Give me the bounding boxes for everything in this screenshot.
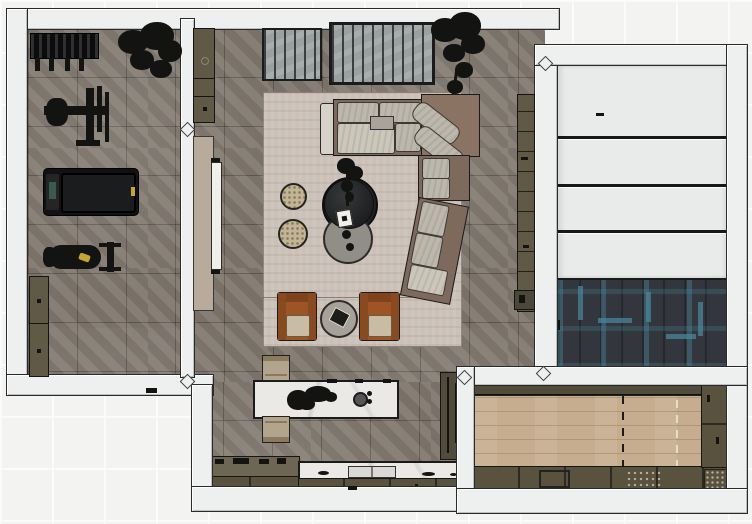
mudroom-base-cabinet-row bbox=[473, 466, 728, 490]
wall-shelf-unit bbox=[517, 94, 535, 312]
sofa-corner-chaise bbox=[421, 94, 480, 157]
plant-foliage bbox=[150, 60, 172, 78]
pouf bbox=[278, 219, 308, 249]
shelf-item bbox=[521, 157, 528, 160]
shelf-item bbox=[523, 245, 529, 248]
cooktop-burner bbox=[259, 459, 269, 464]
treadmill-screen bbox=[49, 182, 56, 199]
chair-backrest bbox=[263, 437, 289, 442]
door-dash-line bbox=[622, 396, 624, 468]
decor-frame bbox=[539, 470, 570, 488]
sofa-end-pad bbox=[406, 264, 448, 297]
herringbone-plank bbox=[598, 318, 632, 323]
panel-joint-line bbox=[676, 396, 678, 468]
cabinet-shelf-line bbox=[194, 96, 214, 97]
rack-leg bbox=[79, 58, 84, 71]
gym-storage-cabinet bbox=[29, 276, 49, 377]
table-decor bbox=[342, 230, 351, 239]
cabinet-shelf-line bbox=[194, 78, 214, 79]
sofa-seat-cushion bbox=[416, 201, 450, 238]
sofa-top-section bbox=[333, 99, 423, 156]
table-decor bbox=[346, 243, 354, 251]
cooktop-burner bbox=[215, 459, 224, 464]
herringbone-plank bbox=[698, 302, 703, 336]
sofa-seat-cushion bbox=[422, 178, 450, 199]
bench-pad bbox=[49, 245, 101, 269]
armchair-seat-cushion bbox=[286, 315, 310, 337]
island-edge-tab bbox=[383, 379, 391, 383]
garage-door-panels bbox=[556, 64, 730, 280]
sofa-seat-cushion bbox=[410, 232, 444, 269]
box-mark bbox=[519, 295, 525, 303]
wall-kitchen-left bbox=[191, 384, 213, 492]
armchair-arm bbox=[278, 293, 286, 340]
garage-door-panel-gap bbox=[558, 184, 728, 187]
machine-bar bbox=[105, 92, 109, 142]
sofa-right-corner-seat bbox=[418, 155, 470, 201]
cabinet-divider bbox=[702, 423, 727, 425]
herringbone-plank bbox=[666, 334, 696, 339]
wall-left bbox=[6, 8, 28, 396]
herringbone-plank bbox=[646, 292, 651, 322]
island-decor-item bbox=[325, 392, 337, 402]
garage-door-panel-gap bbox=[558, 136, 728, 139]
round-side-table bbox=[320, 300, 358, 338]
door-track-bracket bbox=[211, 270, 220, 274]
island-chair-top bbox=[262, 355, 290, 381]
island-trivet bbox=[353, 392, 368, 407]
rack-leg bbox=[49, 58, 54, 71]
island-edge-tab bbox=[327, 379, 337, 383]
cooktop-counter bbox=[208, 456, 300, 478]
mudroom-side-cabinet-column bbox=[701, 384, 728, 468]
wall-garage-top bbox=[534, 44, 748, 66]
plant-foliage bbox=[345, 192, 354, 202]
cabinet-line bbox=[447, 377, 449, 453]
plant-foliage bbox=[455, 62, 473, 78]
island-item bbox=[367, 399, 372, 404]
garage-door-panel-gap bbox=[558, 230, 728, 233]
island-decor-bowl bbox=[299, 398, 315, 410]
mudroom-wood-floor bbox=[473, 394, 705, 470]
door-track-bracket bbox=[211, 158, 220, 162]
wall-cabinet bbox=[193, 28, 215, 123]
wall-mudroom-top bbox=[456, 366, 748, 386]
armchair-arm bbox=[391, 293, 399, 340]
herringbone-plank bbox=[578, 286, 583, 320]
decor-speckle bbox=[626, 470, 662, 486]
armchair-seat-cushion bbox=[368, 315, 392, 337]
machine-seat bbox=[46, 98, 68, 126]
wall-right bbox=[726, 44, 748, 514]
armchair-arm bbox=[360, 293, 368, 340]
island-edge-tab bbox=[355, 379, 363, 383]
wall-mark bbox=[348, 486, 357, 490]
sink-divider bbox=[371, 467, 373, 477]
wall-living-garage bbox=[534, 44, 558, 380]
cooktop-burner bbox=[233, 458, 249, 464]
kitchen-sink bbox=[348, 466, 396, 478]
side-table-object bbox=[328, 307, 350, 328]
bench-foot bbox=[99, 243, 121, 247]
machine-bar bbox=[97, 86, 102, 132]
kitchen-island bbox=[253, 380, 399, 419]
cabinet-handle bbox=[707, 395, 710, 402]
cooktop-burner bbox=[277, 458, 286, 464]
white-book bbox=[336, 209, 354, 228]
island-item bbox=[367, 391, 372, 396]
chair-seat-line bbox=[265, 421, 287, 423]
wall-door-stop bbox=[146, 388, 157, 393]
wall-kitchen-bottom bbox=[191, 486, 474, 512]
machine-post bbox=[86, 88, 94, 146]
rack-leg bbox=[65, 58, 70, 71]
plant-foliage bbox=[447, 80, 463, 94]
plant-foliage bbox=[443, 44, 465, 62]
weight-bench bbox=[43, 241, 123, 273]
strength-machine bbox=[42, 86, 112, 150]
treadmill-logo bbox=[131, 187, 135, 196]
dumbbell-rack bbox=[30, 33, 99, 59]
plant-foliage bbox=[347, 166, 363, 180]
cabinet-handle bbox=[37, 299, 41, 303]
book-mark bbox=[342, 216, 348, 222]
sofa-seat-cushion bbox=[422, 158, 450, 179]
wall-mudroom-bottom bbox=[456, 488, 748, 514]
plant-foliage bbox=[341, 180, 353, 192]
chair-seat-line bbox=[265, 374, 287, 376]
counter-item bbox=[422, 472, 435, 476]
treadmill bbox=[43, 168, 139, 216]
pouf bbox=[280, 183, 307, 210]
plant-foliage bbox=[158, 40, 182, 62]
table-plant bbox=[337, 158, 363, 210]
island-chair-bottom bbox=[262, 416, 290, 443]
garage-door-handle bbox=[596, 113, 604, 116]
slatted-console-left bbox=[262, 28, 322, 81]
bench-foot bbox=[99, 267, 121, 271]
cabinet-item bbox=[201, 57, 209, 65]
cabinet-handle bbox=[716, 437, 719, 444]
leather-armchair-right bbox=[359, 292, 400, 341]
rack-leg bbox=[35, 58, 40, 71]
garage-herringbone-mat bbox=[556, 276, 730, 370]
sofa-tray bbox=[370, 116, 394, 130]
machine-foot bbox=[76, 140, 100, 146]
cabinet-shelf-line bbox=[30, 323, 48, 324]
cabinet-item bbox=[203, 107, 207, 111]
gym-plant bbox=[112, 22, 182, 84]
leather-armchair-left bbox=[277, 292, 317, 341]
slatted-console-right bbox=[329, 22, 435, 85]
floor-plan-canvas bbox=[0, 0, 752, 524]
counter-item bbox=[318, 471, 329, 475]
shelf-end-box bbox=[514, 290, 535, 310]
chair-backrest bbox=[263, 356, 289, 361]
sliding-door-white bbox=[211, 162, 222, 270]
cabinet-handle bbox=[37, 349, 41, 353]
bench-headrest bbox=[43, 247, 56, 267]
treadmill-belt bbox=[61, 173, 136, 213]
